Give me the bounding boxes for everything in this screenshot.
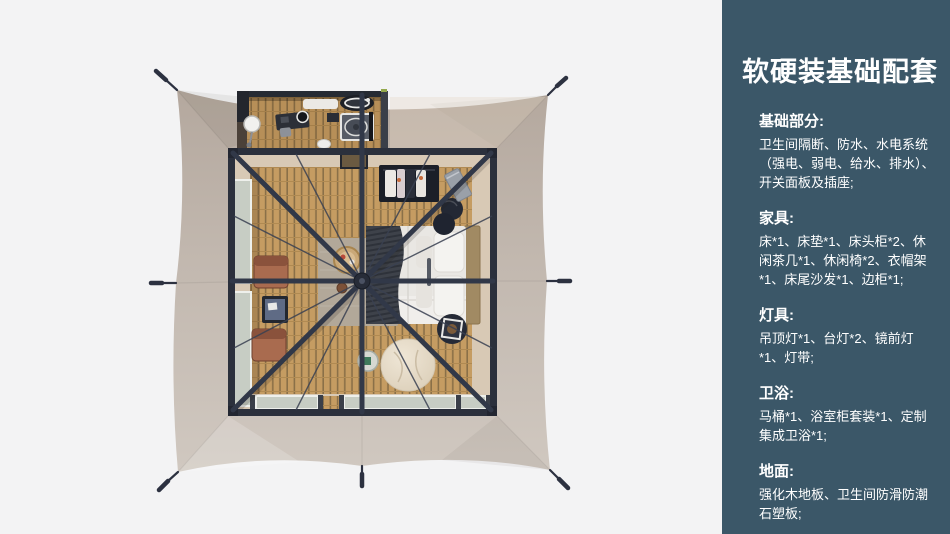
section-lighting: 灯具: 吊顶灯*1、台灯*2、镜前灯*1、灯带; [759,304,937,367]
section-flooring: 地面: 强化木地板、卫生间防滑防潮石塑板; [759,460,937,523]
section-basics: 基础部分: 卫生间隔断、防水、水电系统（强电、弱电、给水、排水）、开关面板及插座… [759,110,937,192]
shower-column [369,112,373,141]
bottom-glass-doors [250,395,491,410]
vanity-stool [280,127,292,137]
stake-bottom-left [159,481,168,490]
sink [340,95,374,111]
section-furniture: 家具: 床*1、床垫*1、床头柜*2、休闲茶几*1、休闲椅*2、衣帽架*1、床尾… [759,207,937,289]
center-hub [354,273,370,289]
tent-render-svg [0,0,722,534]
tea-table [262,296,288,323]
section-flooring-heading: 地面: [759,460,937,481]
section-basics-heading: 基础部分: [759,110,937,131]
bedside-tray-table [437,314,467,344]
toilet [318,140,331,149]
section-furniture-heading: 家具: [759,207,937,228]
sidebar-title: 软硬装基础配套 [742,50,937,89]
headboard [464,226,480,324]
bathroom-east-wall [381,91,388,148]
stake-top-right [557,78,566,86]
section-bathroom-heading: 卫浴: [759,382,937,403]
section-flooring-body: 强化木地板、卫生间防滑防潮石塑板; [759,485,937,523]
spec-sidebar: 软硬装基础配套 基础部分: 卫生间隔断、防水、水电系统（强电、弱电、给水、排水）… [722,0,950,534]
left-window-upper [234,180,251,283]
left-window-lower [234,292,251,406]
stake-top-left [156,71,166,80]
slide: 软硬装基础配套 基础部分: 卫生间隔断、防水、水电系统（强电、弱电、给水、排水）… [0,0,950,534]
floorplan-scene [0,0,722,534]
section-lighting-heading: 灯具: [759,304,937,325]
section-basics-body: 卫生间隔断、防水、水电系统（强电、弱电、给水、排水）、开关面板及插座; [759,135,937,192]
section-furniture-body: 床*1、床垫*1、床头柜*2、休闲茶几*1、休闲椅*2、衣帽架*1、床尾沙发*1… [759,232,937,289]
section-bathroom: 卫浴: 马桶*1、浴室柜套装*1、定制集成卫浴*1; [759,382,937,445]
section-bathroom-body: 马桶*1、浴室柜套装*1、定制集成卫浴*1; [759,407,937,445]
green-accent [381,89,387,92]
shower [341,112,373,141]
lounge-chair-2 [252,329,286,361]
bathroom-annex [237,89,388,149]
stake-bottom-right [559,479,568,488]
counter-slab [303,99,338,109]
clothes-rack [379,165,439,202]
section-lighting-body: 吊顶灯*1、台灯*2、镜前灯*1、灯带; [759,329,937,367]
counter-unit [327,113,339,122]
